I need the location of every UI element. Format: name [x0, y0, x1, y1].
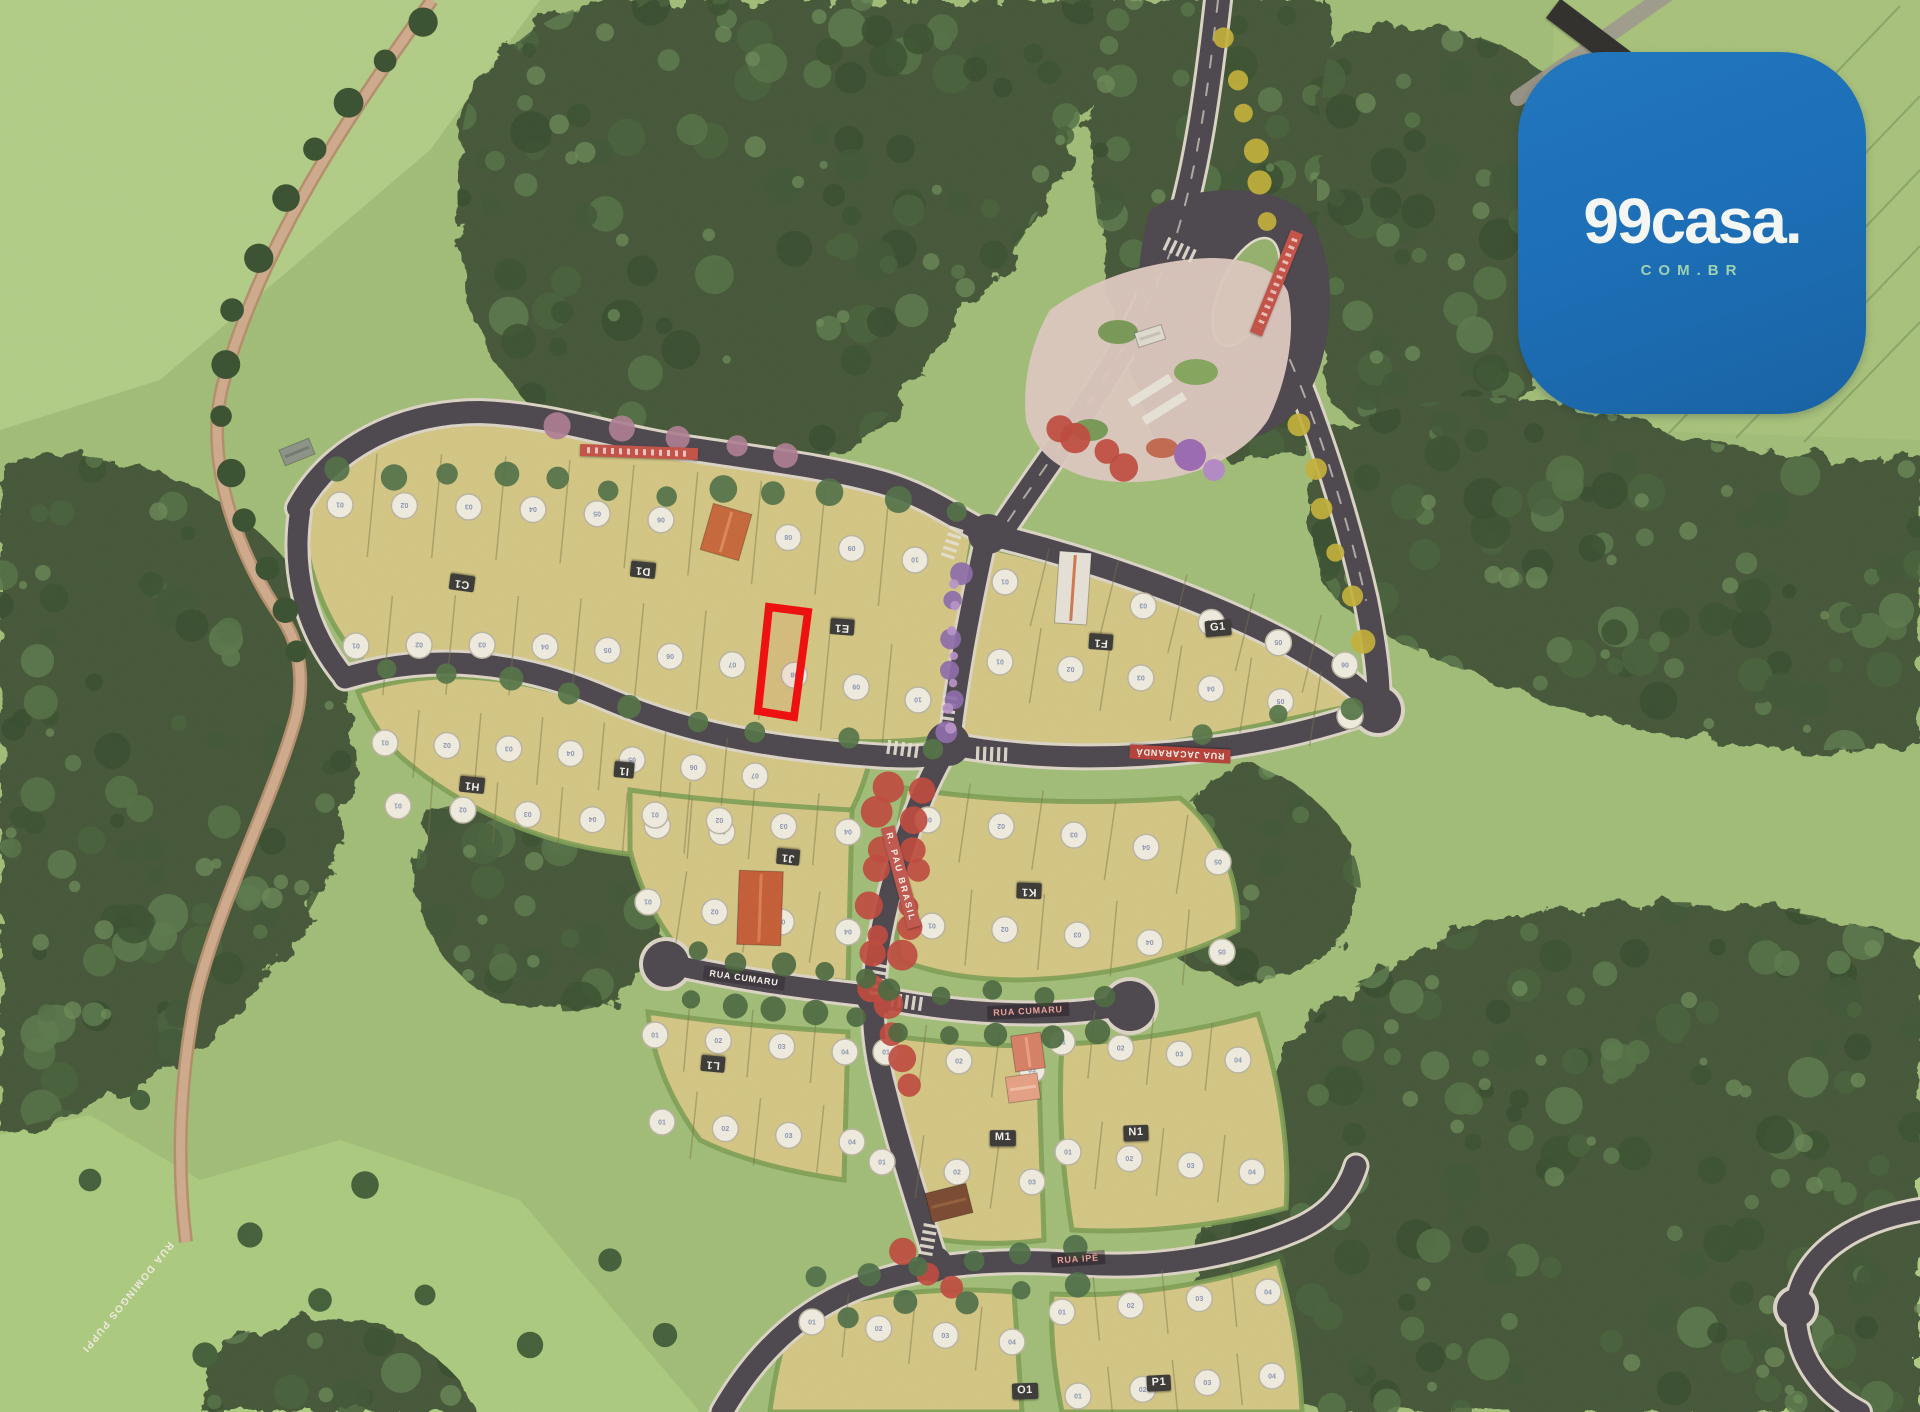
- block-label-j1: J1: [776, 848, 801, 866]
- logo-title: 99casa.: [1583, 189, 1800, 253]
- block-label-d1: D1: [630, 561, 657, 579]
- block-label-l1: L1: [700, 1055, 725, 1073]
- masterplan-aerial-photo: 0102030405060708091001020304050607080910…: [0, 0, 1920, 1412]
- block-label-n1: N1: [1123, 1125, 1149, 1142]
- block-label-h1: H1: [459, 776, 486, 794]
- block-label-p1: P1: [1146, 1374, 1171, 1391]
- block-label-e1: E1: [829, 618, 855, 635]
- block-label-i1: I1: [613, 761, 634, 778]
- 99casa-logo: 99casa. COM.BR: [1518, 52, 1866, 414]
- block-label-o1: O1: [1012, 1383, 1038, 1400]
- block-label-m1: M1: [990, 1130, 1016, 1146]
- block-label-f1: F1: [1089, 633, 1114, 650]
- block-label-g1: G1: [1205, 619, 1232, 637]
- block-label-c1: C1: [448, 573, 475, 592]
- logo-subtitle: COM.BR: [1641, 263, 1744, 278]
- block-label-k1: K1: [1016, 883, 1042, 900]
